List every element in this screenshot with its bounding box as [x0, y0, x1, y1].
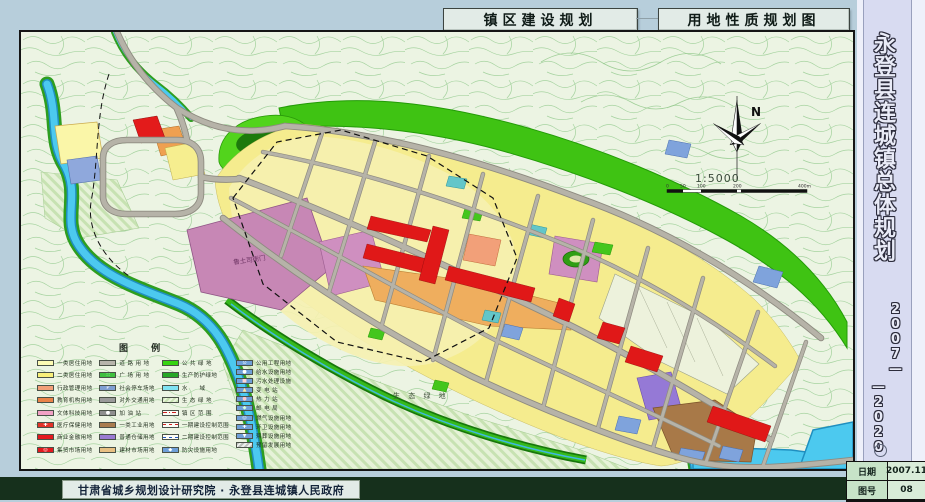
- legend-swatch: ●: [236, 396, 253, 402]
- legend-item: 水 域: [162, 385, 229, 391]
- header-title-right: 用地性质规划图: [658, 8, 850, 31]
- legend-swatch: ✚: [236, 424, 253, 430]
- legend-swatch: [37, 397, 54, 403]
- legend-swatch: [99, 422, 116, 428]
- legend-swatch: [37, 385, 54, 391]
- legend-label: 一类工业用地: [119, 421, 154, 429]
- footer: 甘肃省城乡规划设计研究院 · 永登县连城镇人民政府: [0, 477, 846, 500]
- legend-swatch: ✚: [37, 422, 54, 428]
- legend-label: 加 油 站: [119, 409, 141, 417]
- legend-swatch: [162, 397, 179, 403]
- legend-item: ▼殡葬设施用地: [236, 433, 291, 439]
- planning-map: 鲁土司衙门 生 态 绿 地 N 1:5000: [19, 30, 855, 471]
- legend-label: 二期建设控制范围: [182, 433, 229, 441]
- date-value: 2007.11: [888, 462, 925, 480]
- legend-item: 商业金融用地: [37, 434, 92, 440]
- page: 镇区建设规划 用地性质规划图: [0, 0, 925, 500]
- footer-credit: 甘肃省城乡规划设计研究院 · 永登县连城镇人民政府: [62, 480, 360, 499]
- legend-item: ●热 力 站: [236, 396, 291, 402]
- legend-swatch: [162, 360, 179, 366]
- legend-swatch: ●: [236, 369, 253, 375]
- legend-swatch: ●: [99, 410, 116, 416]
- legend-label: 生 态 绿 地: [182, 396, 212, 404]
- legend-swatch: [99, 434, 116, 440]
- legend-item: 普通仓储用地: [99, 434, 154, 440]
- legend-swatch: ◎: [236, 415, 253, 421]
- legend-label: 防灾设施用地: [182, 446, 217, 454]
- legend-label: 建材市场用地: [119, 446, 154, 454]
- header-divider: [636, 18, 658, 19]
- legend-swatch: [37, 434, 54, 440]
- legend-title: 图 例: [119, 341, 341, 354]
- legend-label: 行政管理用地: [57, 384, 92, 392]
- legend-swatch: ⊙: [236, 360, 253, 366]
- legend-swatch: ∷: [99, 372, 116, 378]
- legend-item: ◎燃气设施用地: [236, 415, 291, 421]
- legend-item: ✚医疗保健用地: [37, 422, 92, 428]
- legend-swatch: P: [99, 385, 116, 391]
- legend-swatch: ■: [236, 378, 253, 384]
- legend-swatch: [37, 410, 54, 416]
- legend-item: 一类工业用地: [99, 422, 154, 428]
- header-title-left: 镇区建设规划: [443, 8, 638, 31]
- legend-label: 集贸市场用地: [57, 446, 92, 454]
- legend-label: 变 电 站: [256, 386, 278, 394]
- legend-label: 环卫设施用地: [256, 423, 291, 431]
- legend-item: ◆防灾设施用地: [162, 447, 229, 453]
- legend-swatch: ▲: [236, 387, 253, 393]
- legend-item: 预留发展用地: [236, 442, 291, 448]
- legend-label: 一类居住用地: [57, 359, 92, 367]
- legend-item: 二类居住用地: [37, 372, 92, 378]
- legend-item: 行政管理用地: [37, 385, 92, 391]
- legend-swatch: [162, 422, 179, 428]
- legend-column: ⊙公用工程用地●给水设施用地■污水处理设施▲变 电 站●热 力 站◆邮 电 局◎…: [236, 360, 291, 448]
- legend-label: 生产防护绿地: [182, 371, 217, 379]
- legend-swatch: [99, 447, 116, 453]
- legend-label: 一期建设控制范围: [182, 421, 229, 429]
- legend-item: ●给水设施用地: [236, 369, 291, 375]
- legend-item: 二期建设控制范围: [162, 434, 229, 440]
- stamp-icon: [874, 444, 887, 457]
- legend-item: ◆邮 电 局: [236, 405, 291, 411]
- legend-swatch: [37, 360, 54, 366]
- legend-item: 教育机构用地: [37, 397, 92, 403]
- legend-swatch: [162, 372, 179, 378]
- legend-item: ⊙公用工程用地: [236, 360, 291, 366]
- legend-label: 公用工程用地: [256, 359, 291, 367]
- legend-item: ✚环卫设施用地: [236, 424, 291, 430]
- sidebar-title-vertical: 永登县连城镇总体规划: [869, 32, 895, 262]
- legend-swatch: [99, 397, 116, 403]
- scale-tick: 200: [733, 184, 742, 190]
- legend-label: 邮 电 局: [256, 404, 278, 412]
- legend-swatch: ◆: [162, 447, 179, 453]
- legend-item: 公 共 绿 地: [162, 360, 229, 366]
- sheet-number-label: 图号: [847, 481, 887, 499]
- legend-item: 生 态 绿 地: [162, 397, 229, 403]
- legend-label: 污水处理设施: [256, 377, 291, 385]
- legend-item: 对外交通用地: [99, 397, 154, 403]
- legend-label: 公 共 绿 地: [182, 359, 212, 367]
- legend-label: 广 场 用 地: [119, 371, 149, 379]
- legend-swatch: [37, 372, 54, 378]
- legend-swatch: ◎: [37, 447, 54, 453]
- legend-label: 医疗保健用地: [57, 421, 92, 429]
- legend-column: 一类居住用地二类居住用地行政管理用地教育机构用地文体科技用地✚医疗保健用地商业金…: [37, 360, 92, 453]
- legend-item: ∷广 场 用 地: [99, 372, 154, 378]
- sidebar-period-start: 2007—: [887, 302, 904, 377]
- legend-label: 教育机构用地: [57, 396, 92, 404]
- legend-column: 道 路 用 地∷广 场 用 地P社会停车场地对外交通用地●加 油 站一类工业用地…: [99, 360, 154, 453]
- legend-label: 水 域: [182, 384, 206, 392]
- legend-item: ◎集贸市场用地: [37, 447, 92, 453]
- scale-text: 1:5000: [695, 172, 740, 185]
- legend-swatch: [162, 385, 179, 391]
- north-label: N: [751, 105, 761, 119]
- sheet-number-value: 08: [888, 481, 925, 499]
- legend-label: 对外交通用地: [119, 396, 154, 404]
- legend-swatch: [236, 442, 253, 448]
- legend-label: 给水设施用地: [256, 368, 291, 376]
- scale-tick: 50: [680, 184, 686, 190]
- legend-item: 建材市场用地: [99, 447, 154, 453]
- legend-item: P社会停车场地: [99, 385, 154, 391]
- scale-tick: 100: [697, 184, 706, 190]
- legend-column: 公 共 绿 地生产防护绿地水 域生 态 绿 地镇 区 范 围一期建设控制范围二期…: [162, 360, 229, 453]
- legend-swatch: ▼: [236, 433, 253, 439]
- eco-label: 生 态 绿 地: [393, 391, 449, 400]
- legend-swatch: [162, 410, 179, 416]
- legend-label: 燃气设施用地: [256, 414, 291, 422]
- legend-item: ▲变 电 站: [236, 387, 291, 393]
- legend-label: 文体科技用地: [57, 409, 92, 417]
- legend-label: 普通仓储用地: [119, 433, 154, 441]
- sidebar: 永登县连城镇总体规划 2007— —2020: [857, 0, 925, 500]
- legend-label: 二类居住用地: [57, 371, 92, 379]
- legend-item: 镇 区 范 围: [162, 410, 229, 416]
- legend-item: 文体科技用地: [37, 410, 92, 416]
- legend: 图 例 一类居住用地二类居住用地行政管理用地教育机构用地文体科技用地✚医疗保健用…: [37, 341, 341, 453]
- legend-item: 一期建设控制范围: [162, 422, 229, 428]
- legend-columns: 一类居住用地二类居住用地行政管理用地教育机构用地文体科技用地✚医疗保健用地商业金…: [37, 360, 341, 453]
- legend-item: 一类居住用地: [37, 360, 92, 366]
- legend-label: 预留发展用地: [256, 441, 291, 449]
- legend-label: 商业金融用地: [57, 433, 92, 441]
- legend-label: 道 路 用 地: [119, 359, 149, 367]
- legend-item: ●加 油 站: [99, 410, 154, 416]
- legend-swatch: [162, 434, 179, 440]
- legend-label: 热 力 站: [256, 395, 278, 403]
- legend-label: 镇 区 范 围: [182, 409, 212, 417]
- scale-tick: 400m: [798, 184, 811, 190]
- legend-item: ■污水处理设施: [236, 378, 291, 384]
- titleblock: 日期 2007.11 图号 08: [846, 461, 925, 502]
- scale-tick: 0: [666, 184, 669, 190]
- legend-item: 生产防护绿地: [162, 372, 229, 378]
- legend-item: 道 路 用 地: [99, 360, 154, 366]
- legend-swatch: [99, 360, 116, 366]
- legend-label: 社会停车场地: [119, 384, 154, 392]
- date-label: 日期: [847, 462, 887, 480]
- legend-label: 殡葬设施用地: [256, 432, 291, 440]
- legend-swatch: ◆: [236, 405, 253, 411]
